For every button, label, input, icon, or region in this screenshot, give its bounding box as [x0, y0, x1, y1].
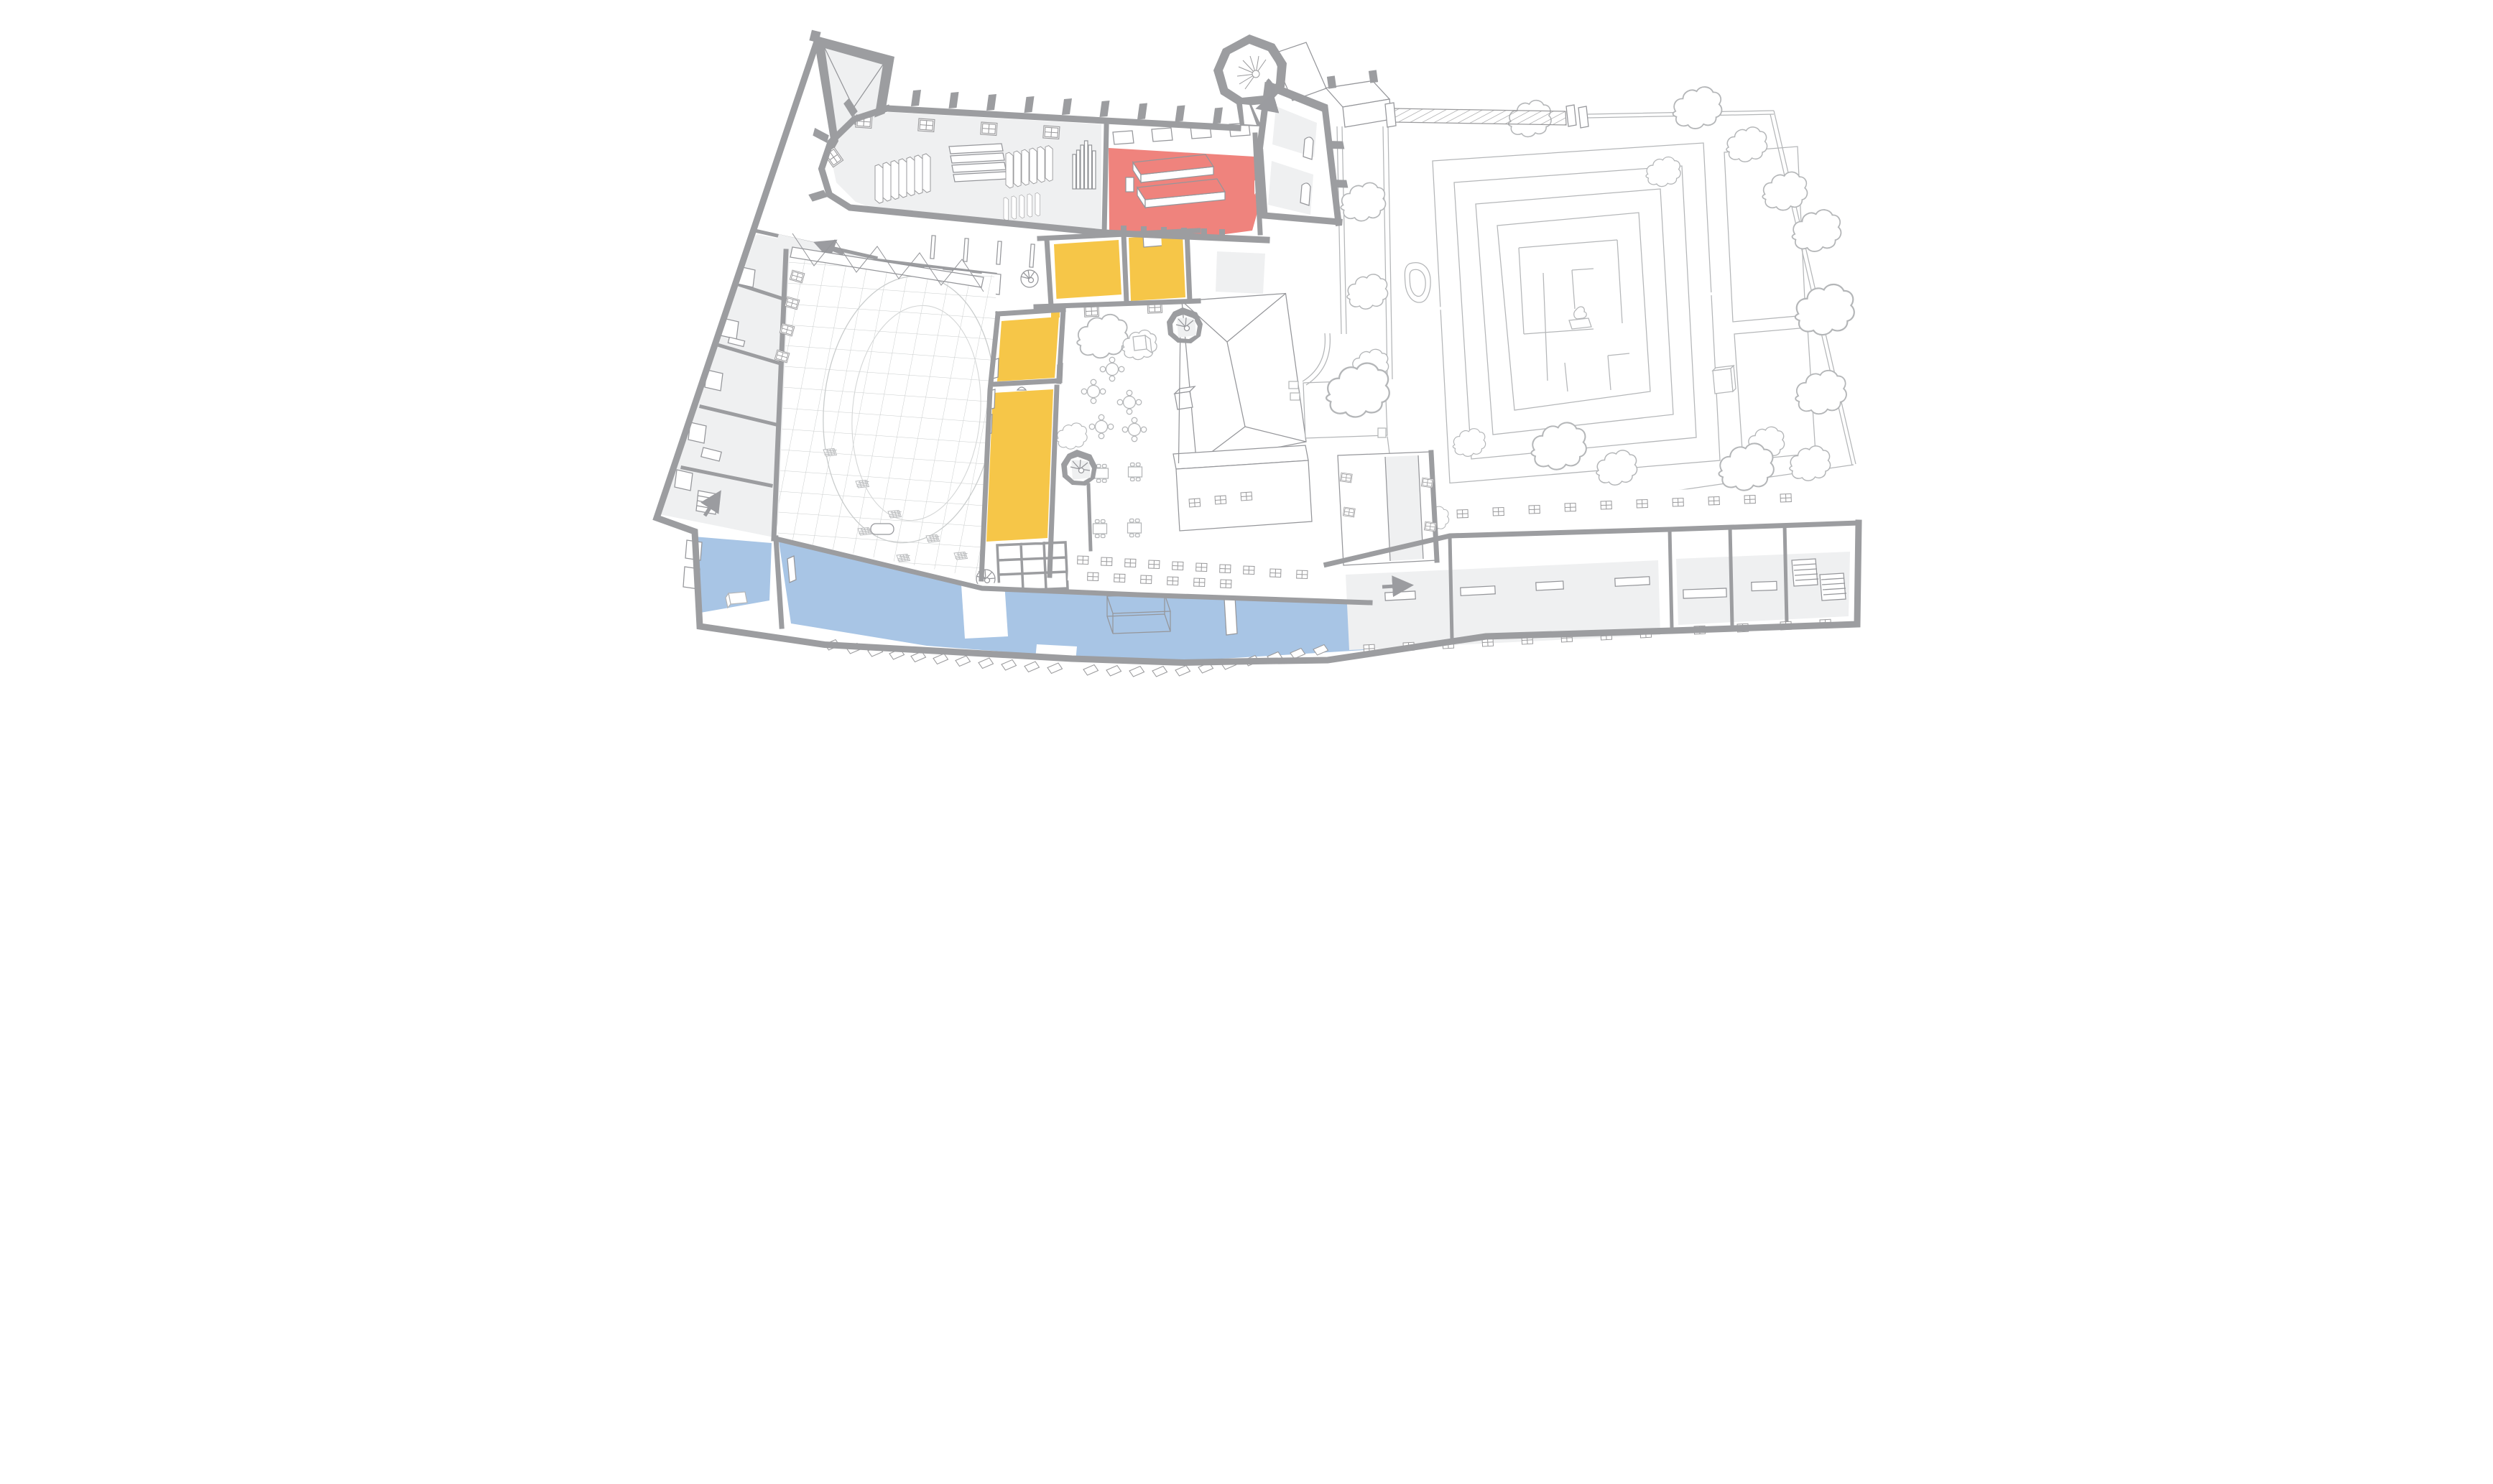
garden-planter — [1713, 366, 1736, 394]
garden-pond — [1405, 263, 1430, 302]
formal-garden — [1337, 87, 1856, 511]
newel-stair — [1021, 270, 1038, 287]
bath-fixture — [871, 524, 894, 534]
garden-west-fence — [1383, 126, 1392, 379]
chapel — [813, 35, 1101, 231]
red-highlighted-hall — [1109, 123, 1262, 237]
yellow-circulation — [986, 233, 1185, 542]
cloister-path — [1337, 126, 1346, 334]
floor-plan-stage — [624, 0, 1870, 742]
bridge-walkway — [1385, 103, 1588, 128]
courtyard-sw-turret — [1061, 450, 1097, 486]
parlour-floor — [1216, 251, 1265, 294]
south-range-roofs — [1068, 550, 1375, 593]
door-arch — [1017, 387, 1026, 390]
axonometric-floor-plan — [624, 0, 1870, 742]
wing-door-arrow — [1382, 585, 1407, 587]
